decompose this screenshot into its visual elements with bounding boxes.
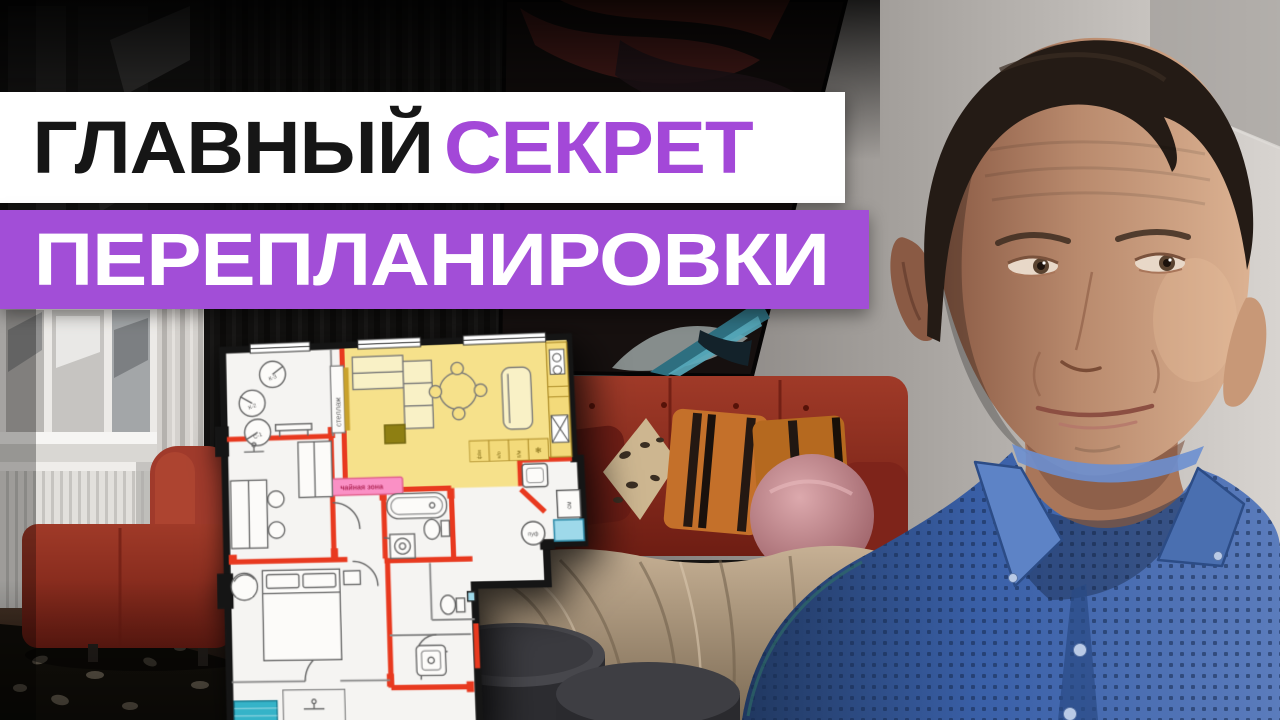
collar-button-right <box>1214 552 1223 561</box>
floor-plan-drawing: К-3 К-2 С-1 стеллаж <box>213 327 605 720</box>
video-thumbnail: К-3 К-2 С-1 стеллаж <box>0 0 1280 720</box>
svg-text:н/о: н/о <box>496 451 503 459</box>
headline-word-main: ГЛАВНЫЙ <box>32 106 433 189</box>
headline-line1: ГЛАВНЫЙСЕКРЕТ <box>0 92 913 203</box>
floor-plan: К-3 К-2 С-1 стеллаж <box>213 327 605 720</box>
plan-kitchen <box>546 342 572 457</box>
headline-banner-top: ГЛАВНЫЙСЕКРЕТ <box>0 92 845 203</box>
headline-word-secret: СЕКРЕТ <box>444 106 753 189</box>
shirt-button-2 <box>1064 708 1077 720</box>
plan-balcony-window <box>554 519 585 541</box>
svg-text:см: см <box>567 501 574 509</box>
collar-button-left <box>1009 574 1018 583</box>
svg-text:п/м: п/м <box>516 450 523 459</box>
svg-text:чайная зона: чайная зона <box>340 483 383 492</box>
plan-appliances: ф/м н/о п/м ❄ <box>469 439 549 462</box>
pouf-label: пуф <box>528 531 539 538</box>
plan-rug-square <box>384 425 405 444</box>
shirt-button <box>1074 644 1087 657</box>
tea-zone-label: чайная зона <box>321 477 403 496</box>
shelf-label: стеллаж <box>333 397 343 427</box>
blue-shirt <box>742 444 1280 720</box>
fridge-icon: ❄ <box>535 446 542 456</box>
plan-shelf: стеллаж <box>330 366 350 434</box>
headline-line2: ПЕРЕПЛАНИРОВКИ <box>0 210 973 309</box>
headline-banner-bottom: ПЕРЕПЛАНИРОВКИ <box>0 210 869 309</box>
plan-doormat <box>234 701 277 720</box>
svg-text:ф/м: ф/м <box>477 449 484 459</box>
